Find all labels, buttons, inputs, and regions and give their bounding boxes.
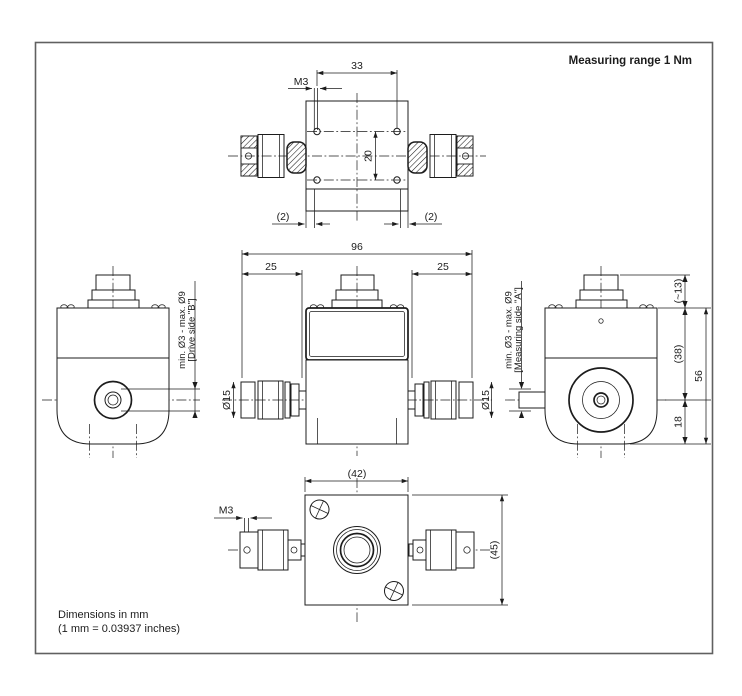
measuring-side-label: [Measuring side "A"] bbox=[513, 287, 524, 372]
dim-dia15-left: Ø15 bbox=[221, 390, 233, 410]
shaft-end-b bbox=[95, 382, 132, 419]
note-conversion: (1 mm = 0.03937 inches) bbox=[58, 623, 180, 635]
dim-25-right: 25 bbox=[437, 261, 449, 273]
dim-96: 96 bbox=[351, 241, 363, 253]
drawing-page: Measuring range 1 Nm bbox=[0, 0, 742, 696]
connector-boss-bottom bbox=[334, 527, 381, 574]
housing-front bbox=[306, 360, 408, 444]
dim-20: 20 bbox=[363, 150, 375, 162]
dim-18: 18 bbox=[673, 416, 685, 428]
dim-42: (42) bbox=[348, 468, 367, 480]
drive-side-label: [Drive side "B"] bbox=[187, 298, 198, 361]
dimensional-drawing: Measuring range 1 Nm bbox=[0, 0, 742, 696]
lid-front bbox=[306, 308, 408, 360]
dim-38: (38) bbox=[673, 345, 685, 364]
shaft-stub-a bbox=[519, 392, 545, 408]
dim-2-left: (2) bbox=[277, 211, 290, 223]
dim-33: 33 bbox=[351, 60, 363, 72]
dim-dia15-right: Ø15 bbox=[480, 390, 492, 410]
measuring-range-title: Measuring range 1 Nm bbox=[569, 55, 692, 67]
dim-56: 56 bbox=[693, 370, 705, 382]
housing-left-side bbox=[57, 308, 169, 444]
housing-right-side bbox=[545, 308, 657, 444]
dim-25-left: 25 bbox=[265, 261, 277, 273]
thread-label-bottom: M3 bbox=[219, 505, 234, 517]
dim-13: (~13) bbox=[673, 279, 685, 304]
dim-45: (45) bbox=[489, 541, 501, 560]
thread-label-top: M3 bbox=[294, 76, 309, 88]
dim-2-right: (2) bbox=[425, 211, 438, 223]
note-units: Dimensions in mm bbox=[58, 609, 148, 621]
